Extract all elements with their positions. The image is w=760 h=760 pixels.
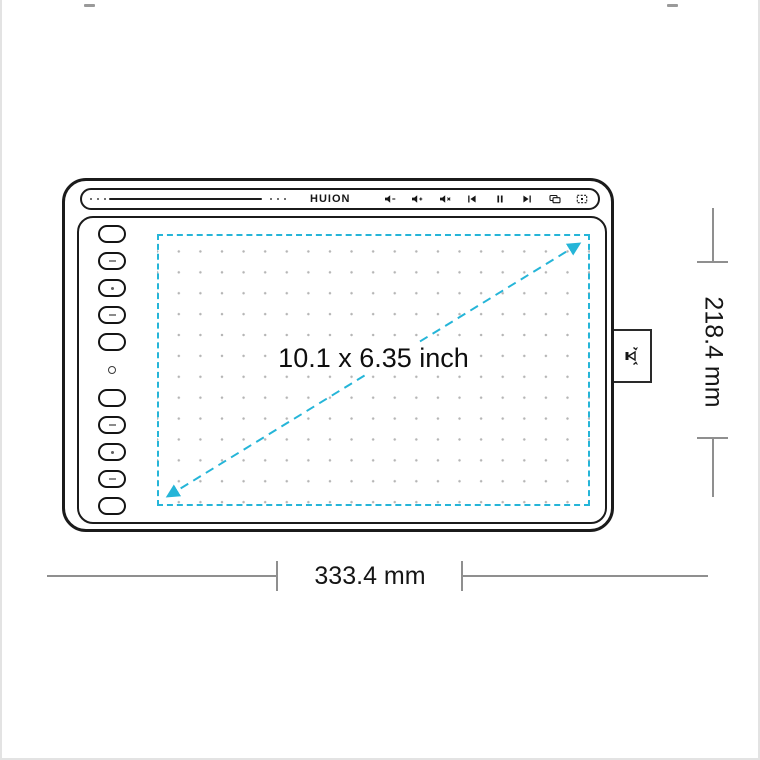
width-dimension-label: 333.4 mm — [290, 562, 450, 591]
left-edge-line — [0, 0, 2, 760]
height-dim-tick-top — [697, 261, 728, 263]
crop-artifact — [84, 4, 95, 7]
width-dim-line-left — [47, 575, 277, 577]
express-key — [98, 497, 126, 515]
play-pause-icon — [494, 194, 506, 204]
express-key — [98, 389, 126, 407]
status-led — [108, 366, 116, 374]
pen-holder-icon — [624, 345, 640, 367]
brand-logo: HUION — [310, 193, 350, 205]
width-dim-tick-left — [276, 561, 278, 591]
express-key-group-bottom — [98, 389, 126, 515]
express-key-group-top — [98, 225, 126, 351]
mute-icon — [439, 194, 451, 204]
express-key — [98, 225, 126, 243]
product-diagram: HUION 10.1 x 6.35 inch 333.4 mm 218.4 mm — [0, 0, 760, 760]
volume-up-icon — [411, 194, 423, 204]
express-key — [98, 333, 126, 351]
previous-track-icon — [466, 194, 478, 204]
switch-display-icon — [549, 194, 561, 204]
media-keys — [384, 190, 588, 208]
active-area-size-label: 10.1 x 6.35 inch — [273, 343, 474, 374]
media-bar: HUION — [80, 188, 600, 210]
express-key — [98, 470, 126, 488]
express-key — [98, 279, 126, 297]
next-track-icon — [521, 194, 533, 204]
touch-strip — [109, 198, 262, 200]
height-dim-line-bottom — [712, 438, 714, 497]
express-key — [98, 306, 126, 324]
virtual-desktop-icon — [576, 194, 588, 204]
express-key — [98, 443, 126, 461]
express-key — [98, 416, 126, 434]
express-key — [98, 252, 126, 270]
volume-down-icon — [384, 194, 396, 204]
express-keys — [98, 225, 126, 515]
active-area: 10.1 x 6.35 inch — [157, 234, 590, 506]
height-dim-line-top — [712, 208, 714, 262]
crop-artifact — [667, 4, 678, 7]
width-dim-line-right — [462, 575, 708, 577]
strip-dots-left — [90, 198, 106, 200]
strip-dots-right — [270, 198, 286, 200]
height-dimension-text: 218.4 mm — [699, 296, 728, 407]
pen-holder-tab — [612, 329, 652, 383]
